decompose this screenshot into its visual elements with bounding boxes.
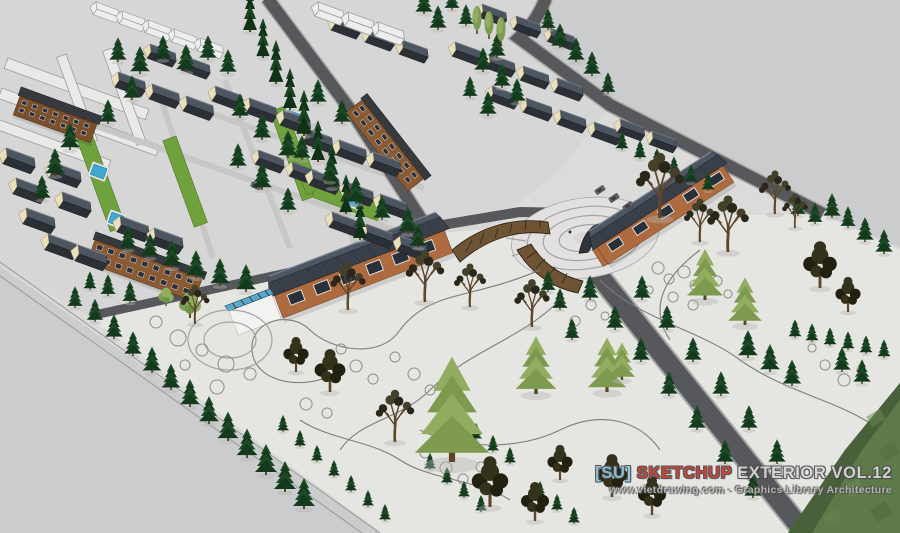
watermark-subtitle: www.vietdrawing.com - Graphics Library A… [595, 484, 892, 497]
site-render [0, 0, 900, 533]
watermark-volume: EXTERIOR VOL.12 [737, 464, 892, 482]
watermark-su-tag: [SU] [595, 464, 631, 482]
watermark-brand: SKETCHUP [637, 464, 732, 482]
person-figure [569, 231, 572, 234]
watermark-title: [SU] SKETCHUP EXTERIOR VOL.12 [595, 464, 892, 484]
render-viewport: [SU] SKETCHUP EXTERIOR VOL.12 www.vietdr… [0, 0, 900, 533]
watermark: [SU] SKETCHUP EXTERIOR VOL.12 www.vietdr… [595, 464, 892, 496]
